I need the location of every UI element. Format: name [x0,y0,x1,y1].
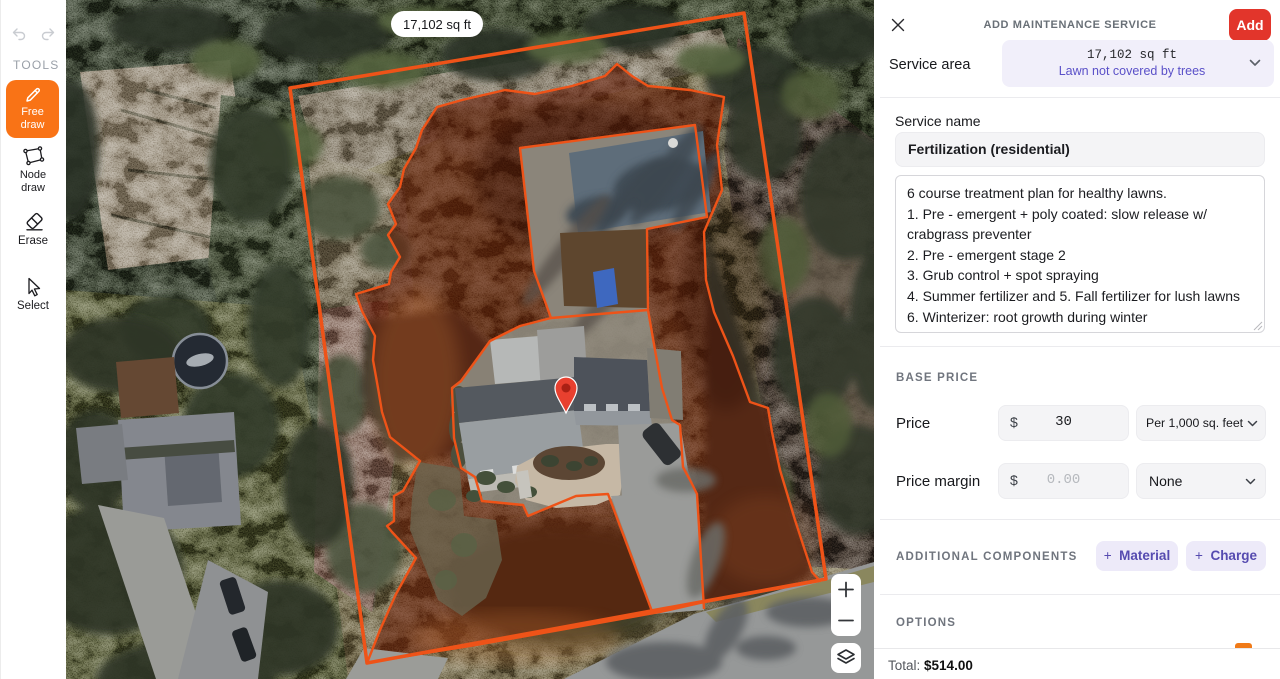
svg-text:17,102 sq ft: 17,102 sq ft [403,17,471,32]
